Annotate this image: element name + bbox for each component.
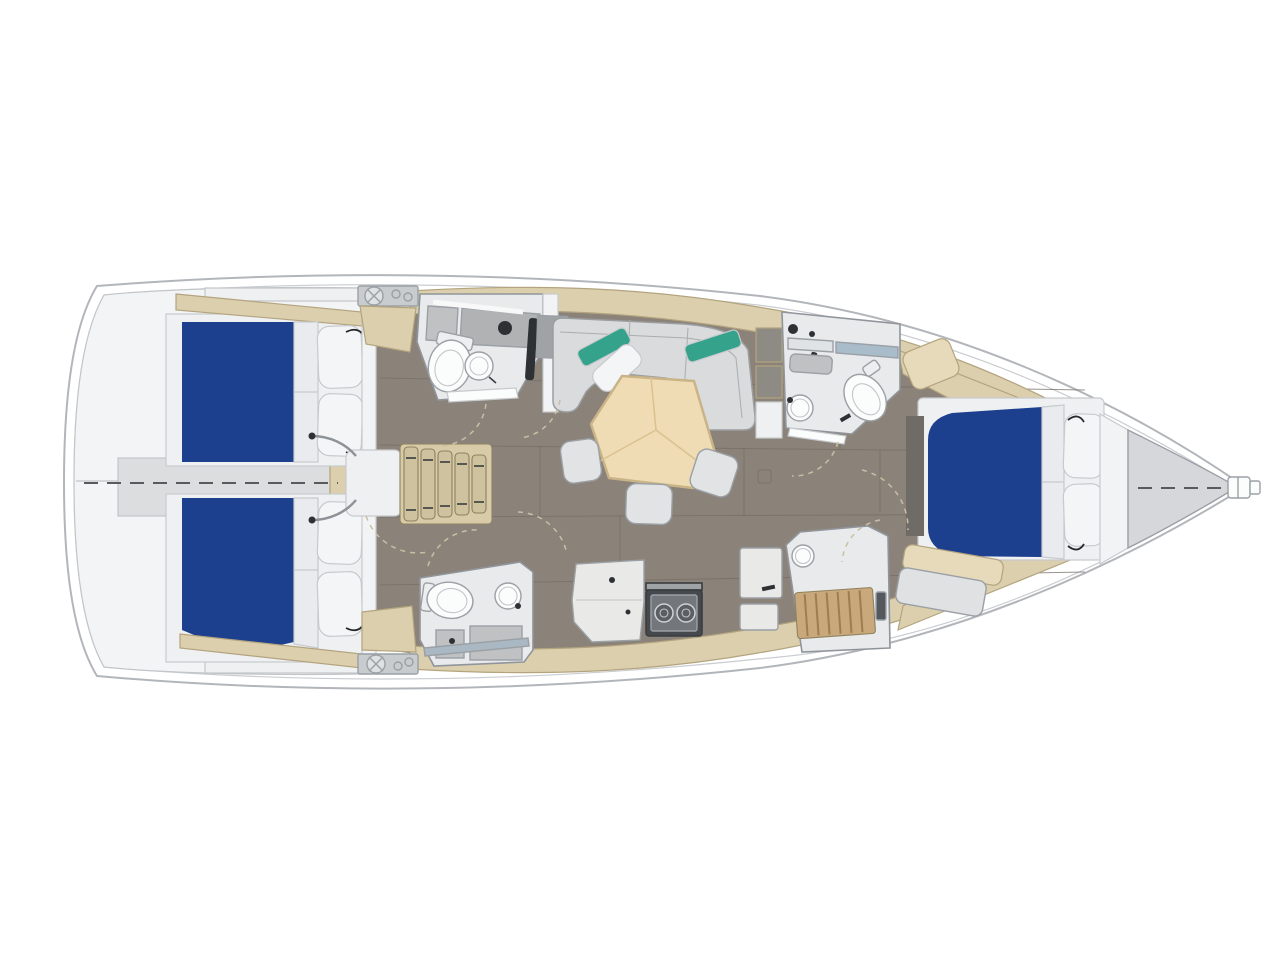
berth-mattress-blue	[182, 498, 294, 654]
sink-drain	[498, 321, 512, 335]
companionway-steps	[404, 447, 486, 521]
aft-cabin-starboard	[166, 494, 364, 668]
galley-cabinet	[740, 604, 778, 630]
burner	[655, 604, 673, 622]
sink	[789, 354, 832, 375]
stool	[625, 483, 672, 525]
spotlight	[788, 324, 798, 334]
winch-plate-port	[358, 286, 418, 352]
yacht-floor-plan	[0, 0, 1280, 960]
companionway-landing	[346, 450, 402, 516]
saloon-lockers	[756, 328, 782, 438]
burner	[677, 604, 695, 622]
teak-grate	[795, 587, 876, 638]
pillow	[1063, 483, 1105, 546]
step-mat	[906, 416, 924, 536]
mirror	[788, 338, 833, 352]
faucet	[787, 397, 793, 403]
pillow	[317, 325, 363, 388]
pillow	[317, 393, 363, 456]
galley-counter	[572, 560, 644, 642]
vent-grille	[876, 592, 886, 620]
pillow	[317, 571, 363, 636]
winch-plate-starboard	[358, 606, 418, 674]
pillow	[1063, 413, 1105, 478]
floor-plan-canvas	[0, 0, 1280, 960]
round-sink	[465, 352, 493, 380]
anchor-locker	[1128, 430, 1260, 548]
bow-bulkhead	[1100, 414, 1128, 564]
faucet	[515, 603, 521, 609]
forward-shower	[786, 526, 890, 652]
stove	[646, 583, 702, 636]
aft-head-starboard	[420, 562, 533, 666]
galley-cabinet	[740, 548, 782, 598]
cockpit-pedestal	[362, 606, 416, 652]
bow-fitting	[1228, 477, 1250, 498]
berth-mattress-blue	[928, 407, 1042, 557]
stool	[559, 438, 602, 485]
berth-mattress-blue	[182, 322, 294, 462]
